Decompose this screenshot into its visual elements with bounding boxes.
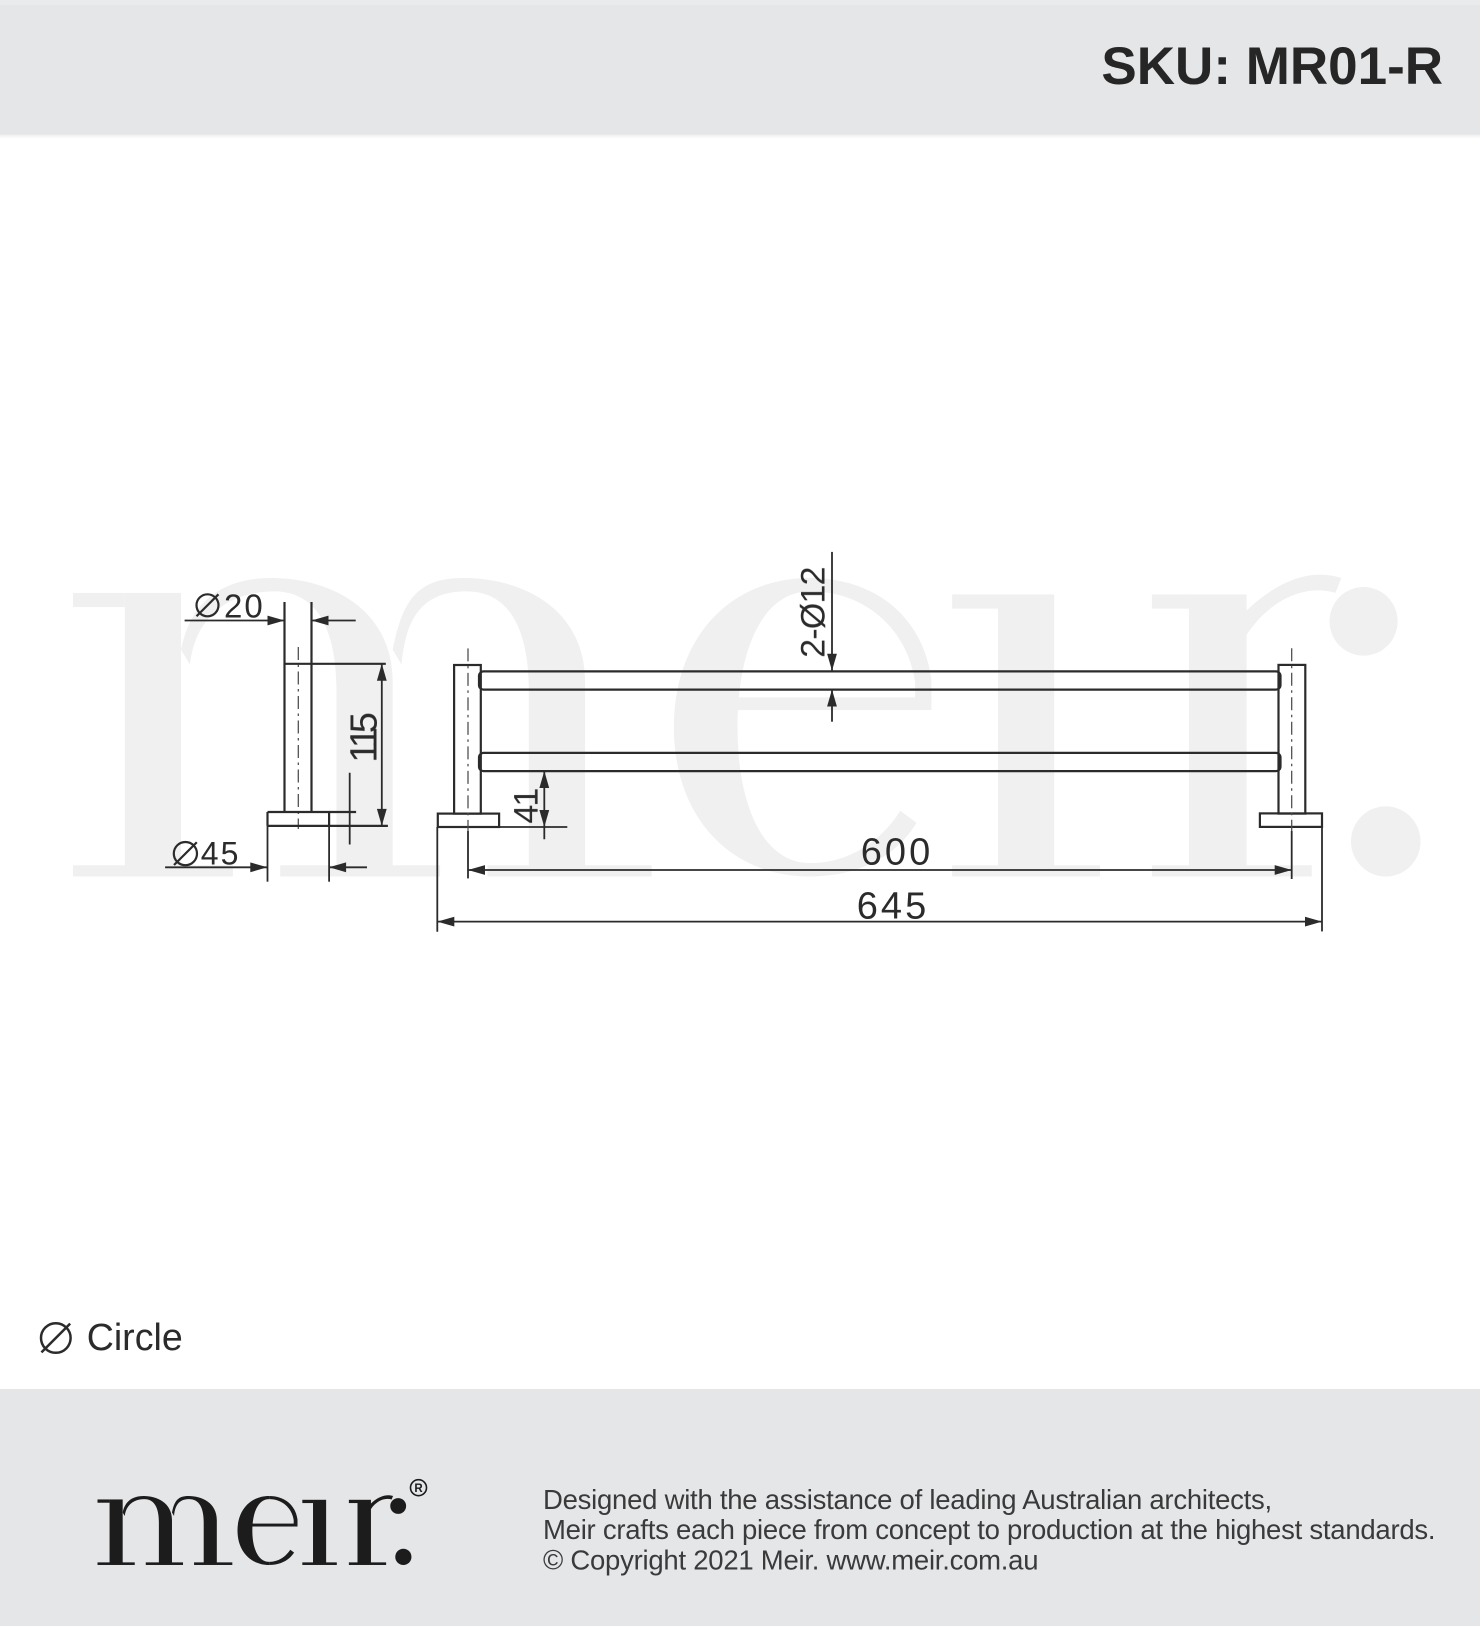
svg-text:645: 645	[857, 886, 929, 928]
svg-text:Meir crafts each piece from co: Meir crafts each piece from concept to p…	[543, 1514, 1435, 1545]
svg-text:115: 115	[344, 712, 386, 763]
svg-text:600: 600	[861, 832, 933, 874]
svg-text:Designed with the assistance o: Designed with the assistance of leading …	[543, 1484, 1272, 1515]
svg-text:Circle: Circle	[87, 1316, 183, 1358]
svg-text:SKU: MR01-R: SKU: MR01-R	[1101, 37, 1443, 96]
svg-text:45: 45	[201, 836, 241, 872]
svg-text:2-Ø12: 2-Ø12	[795, 567, 833, 658]
svg-text:41: 41	[508, 788, 546, 824]
svg-text:© Copyright 2021 Meir. www.mei: © Copyright 2021 Meir. www.meir.com.au	[543, 1544, 1038, 1575]
svg-text:R: R	[414, 1483, 423, 1495]
svg-text:20: 20	[224, 587, 265, 624]
